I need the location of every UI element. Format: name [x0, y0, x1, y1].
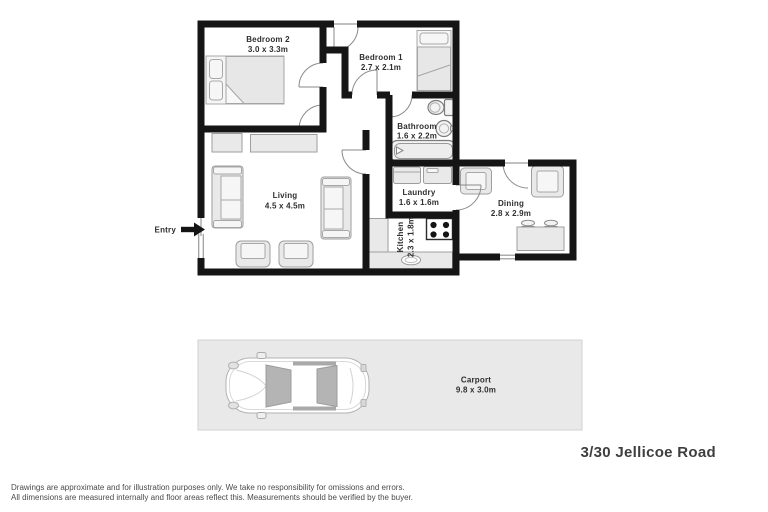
- room-name: Bedroom 1: [359, 53, 403, 62]
- stove-icon: [427, 219, 453, 240]
- room-name: Bedroom 2: [246, 35, 290, 44]
- room-name: Kitchen: [396, 222, 405, 253]
- room-name: Carport: [461, 376, 491, 385]
- room-dims: 2.7 x 2.1m: [361, 63, 401, 72]
- room-label-bedroom2: Bedroom 2 3.0 x 3.3m: [246, 35, 290, 54]
- room-label-dining: Dining 2.8 x 2.9m: [491, 199, 531, 218]
- room-dims: 2.3 x 1.8m: [407, 217, 416, 257]
- living-sofa-right-icon: [321, 177, 351, 239]
- living-sideboard-icons: [212, 134, 317, 153]
- room-dims: 3.0 x 3.3m: [248, 45, 288, 54]
- carport-area: Carport 9.8 x 3.0m: [198, 340, 582, 430]
- room-label-bathroom: Bathroom 1.6 x 2.2m: [397, 122, 437, 141]
- address-label: 3/30 Jellicoe Road: [581, 444, 716, 461]
- room-dims: 1.6 x 1.6m: [399, 198, 439, 207]
- entry-marker: Entry: [155, 223, 205, 237]
- car-top-view-icon: [226, 353, 369, 419]
- room-name: Bathroom: [397, 122, 436, 131]
- living-armchair-icons: [236, 241, 313, 267]
- floorplan-page: Bedroom 2 3.0 x 3.3m Bedroom 1 2.7 x 2.1…: [0, 0, 768, 512]
- room-dims: 9.8 x 3.0m: [456, 386, 496, 395]
- disclaimer-line-1: Drawings are approximate and for illustr…: [11, 483, 413, 493]
- floorplan-svg: Bedroom 2 3.0 x 3.3m Bedroom 1 2.7 x 2.1…: [0, 0, 768, 512]
- room-label-bedroom1: Bedroom 1 2.7 x 2.1m: [359, 53, 403, 72]
- washer-dryer-icons: [394, 167, 452, 184]
- toilet-icon: [428, 100, 454, 116]
- room-label-kitchen: Kitchen 2.3 x 1.8m: [396, 217, 416, 257]
- room-label-living: Living 4.5 x 4.5m: [265, 191, 305, 211]
- room-dims: 4.5 x 4.5m: [265, 202, 305, 211]
- living-sofa-left-icon: [212, 166, 243, 228]
- room-name: Laundry: [403, 188, 436, 197]
- dining-chair-icons: [461, 166, 564, 197]
- room-dims: 1.6 x 2.2m: [397, 132, 437, 141]
- bedroom2-bed-icon: [206, 56, 284, 104]
- bedroom1-bed-icon: [417, 31, 451, 91]
- room-name: Dining: [498, 199, 524, 208]
- room-name: Living: [273, 191, 298, 200]
- disclaimer-line-2: All dimensions are measured internally a…: [11, 493, 413, 503]
- entry-label: Entry: [155, 226, 177, 235]
- room-label-laundry: Laundry 1.6 x 1.6m: [399, 188, 439, 207]
- dining-table-icon: [517, 220, 564, 250]
- bathtub-icon: [391, 141, 456, 162]
- carport-label: Carport 9.8 x 3.0m: [456, 376, 496, 395]
- disclaimer-text: Drawings are approximate and for illustr…: [11, 483, 413, 502]
- bathroom-sink-icon: [436, 121, 455, 137]
- room-dims: 2.8 x 2.9m: [491, 209, 531, 218]
